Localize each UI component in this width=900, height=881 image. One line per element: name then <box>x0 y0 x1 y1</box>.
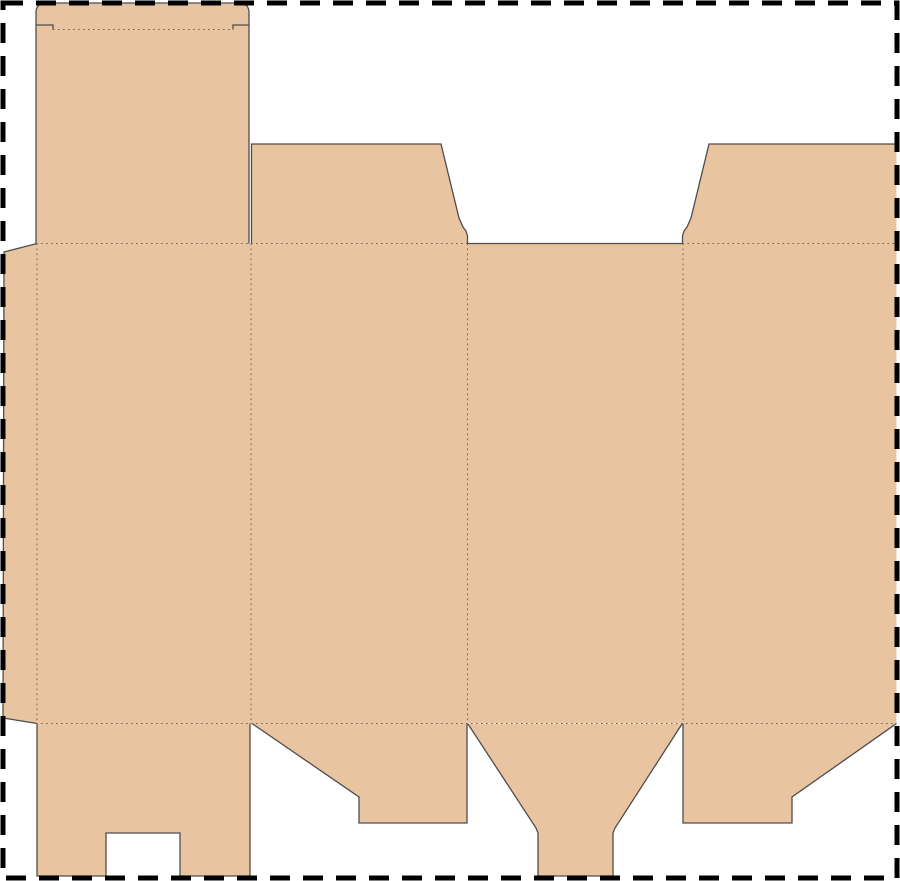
main-body-panels-fill <box>36 244 897 724</box>
bottom-flap-3-fill <box>468 724 682 876</box>
bottom-flap-1-fill <box>37 724 250 877</box>
glue-flap-fill <box>3 244 37 724</box>
box-dieline-svg <box>0 0 900 881</box>
top-flap-left-fill <box>252 144 468 244</box>
tuck-lid-panel-fill <box>36 3 249 244</box>
top-flap-right-fill <box>683 144 897 244</box>
bottom-flap-4-fill <box>683 724 897 824</box>
dieline-canvas <box>0 0 900 881</box>
